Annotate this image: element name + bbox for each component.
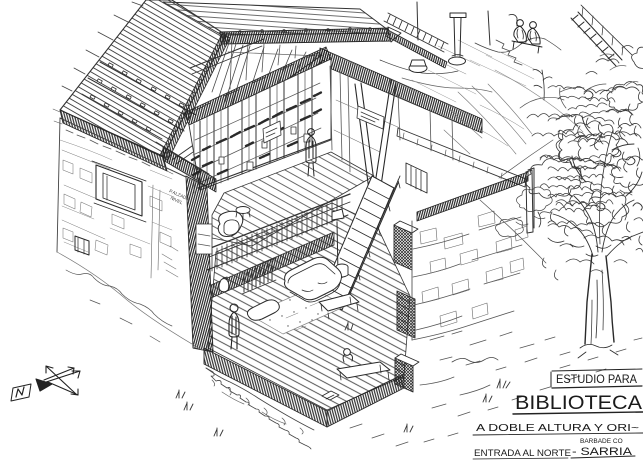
svg-text:ENTRADA AL NORTE: ENTRADA AL NORTE [474,448,571,459]
svg-text:ESTUDIO PARA: ESTUDIO PARA [556,374,637,386]
svg-text:BARBADE CO: BARBADE CO [580,438,623,445]
svg-text:BIBLIOTECA: BIBLIOTECA [515,393,642,414]
svg-text:A DOBLE ALTURA Y ORI~: A DOBLE ALTURA Y ORI~ [476,423,639,434]
